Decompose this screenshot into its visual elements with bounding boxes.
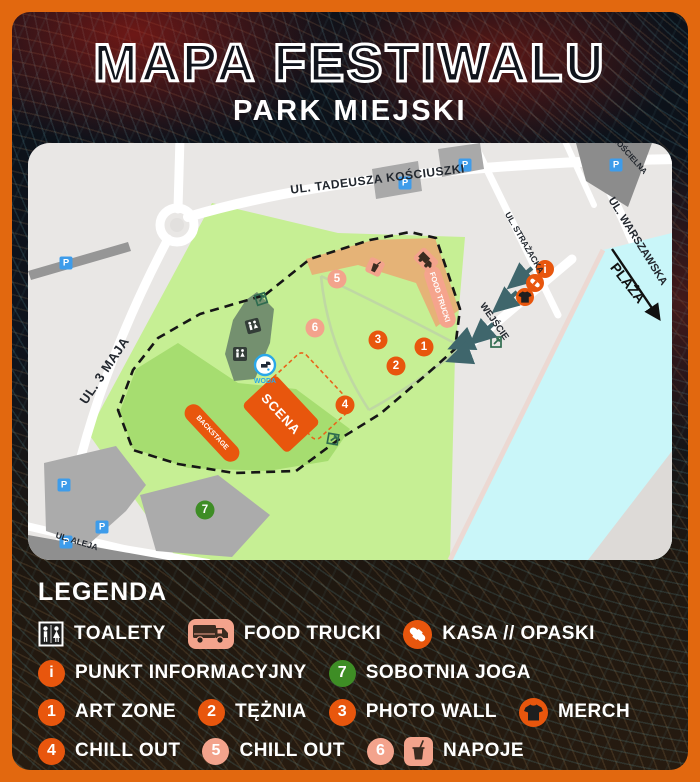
- parking-icon: P: [613, 160, 620, 171]
- legend: LEGENDA: [38, 578, 668, 770]
- svg-text:2: 2: [393, 360, 399, 372]
- svg-text:7: 7: [202, 504, 208, 516]
- wristband-icon: [403, 620, 432, 649]
- legend-item-art-zone: 1 ART ZONE: [38, 699, 176, 726]
- poster-header: MAPA FESTIWALU PARK MIEJSKI: [12, 36, 688, 128]
- legend-item-napoje: 6 NAPOJE: [367, 737, 524, 766]
- map-marker-7: 7: [196, 501, 215, 520]
- food-truck-icon: [188, 619, 234, 649]
- parking-icon: P: [63, 258, 70, 269]
- legend-item-food-trucki: FOOD TRUCKI: [188, 619, 381, 649]
- info-badge: i: [38, 660, 65, 687]
- legend-label: CHILL OUT: [239, 740, 344, 762]
- drink-icon: [404, 737, 433, 766]
- legend-label: PHOTO WALL: [366, 701, 497, 723]
- toilets-icon: [38, 621, 64, 647]
- legend-item-kasa-opaski: KASA // OPASKI: [403, 620, 595, 649]
- poster-frame: MAPA FESTIWALU PARK MIEJSKI: [0, 0, 700, 782]
- toilets-map-icon: [233, 347, 247, 361]
- legend-item-teznia: 2 TĘŻNIA: [198, 699, 307, 726]
- water-point: WODA: [254, 355, 276, 385]
- poster-background: MAPA FESTIWALU PARK MIEJSKI: [12, 12, 688, 770]
- marker-badge-4: 4: [38, 738, 65, 765]
- legend-item-photo-wall: 3 PHOTO WALL: [329, 699, 497, 726]
- svg-text:4: 4: [342, 399, 349, 411]
- legend-label: FOOD TRUCKI: [244, 623, 381, 645]
- legend-label: ART ZONE: [75, 701, 176, 723]
- poster-title: MAPA FESTIWALU: [12, 36, 688, 92]
- svg-text:1: 1: [421, 341, 428, 353]
- map-marker-6: 6: [306, 319, 325, 338]
- legend-row-4: 4 CHILL OUT 5 CHILL OUT 6: [38, 736, 668, 766]
- marker-badge-1: 1: [38, 699, 65, 726]
- legend-item-sobotnia-joga: 7 SOBOTNIA JOGA: [329, 660, 531, 687]
- tshirt-icon: [519, 698, 548, 727]
- marker-badge-6: 6: [367, 738, 394, 765]
- legend-row-3: 1 ART ZONE 2 TĘŻNIA 3 PHOTO WALL: [38, 697, 668, 727]
- legend-label: KASA // OPASKI: [442, 623, 595, 645]
- woda-label: WODA: [254, 378, 276, 385]
- legend-item-chill-out-4: 4 CHILL OUT: [38, 738, 180, 765]
- marker-badge-7: 7: [329, 660, 356, 687]
- marker-badge-3: 3: [329, 699, 356, 726]
- svg-text:5: 5: [334, 273, 341, 285]
- map-marker-3: 3: [369, 331, 388, 350]
- legend-label: SOBOTNIA JOGA: [366, 662, 531, 684]
- legend-item-chill-out-5: 5 CHILL OUT: [202, 738, 344, 765]
- legend-label: TĘŻNIA: [235, 701, 307, 723]
- legend-item-punkt-informacyjny: i PUNKT INFORMACYJNY: [38, 660, 307, 687]
- legend-label: CHILL OUT: [75, 740, 180, 762]
- marker-badge-2: 2: [198, 699, 225, 726]
- legend-heading: LEGENDA: [38, 578, 668, 607]
- map-marker-1: 1: [415, 338, 434, 357]
- legend-label: TOALETY: [74, 623, 166, 645]
- legend-item-toalety: TOALETY: [38, 621, 166, 647]
- legend-item-merch: MERCH: [519, 698, 630, 727]
- svg-text:3: 3: [375, 334, 381, 346]
- parking-icon: P: [99, 522, 106, 533]
- map-marker-4: 4: [336, 396, 355, 415]
- parking-icon: P: [61, 480, 68, 491]
- legend-label: NAPOJE: [443, 740, 524, 762]
- merch-map-icon: [516, 288, 534, 306]
- festival-map: SCENA BACKSTAGE FOOD TRUCKI: [28, 143, 672, 560]
- legend-label: PUNKT INFORMACYJNY: [75, 662, 307, 684]
- legend-label: MERCH: [558, 701, 630, 723]
- poster-subtitle: PARK MIEJSKI: [12, 95, 688, 128]
- svg-text:6: 6: [312, 322, 318, 334]
- legend-row-2: i PUNKT INFORMACYJNY 7 SOBOTNIA JOGA: [38, 658, 668, 688]
- map-marker-2: 2: [387, 357, 406, 376]
- legend-row-1: TOALETY FOOD TRUCKI: [38, 619, 668, 649]
- festival-map-card: SCENA BACKSTAGE FOOD TRUCKI: [28, 143, 672, 560]
- marker-badge-5: 5: [202, 738, 229, 765]
- map-marker-5: 5: [328, 270, 347, 289]
